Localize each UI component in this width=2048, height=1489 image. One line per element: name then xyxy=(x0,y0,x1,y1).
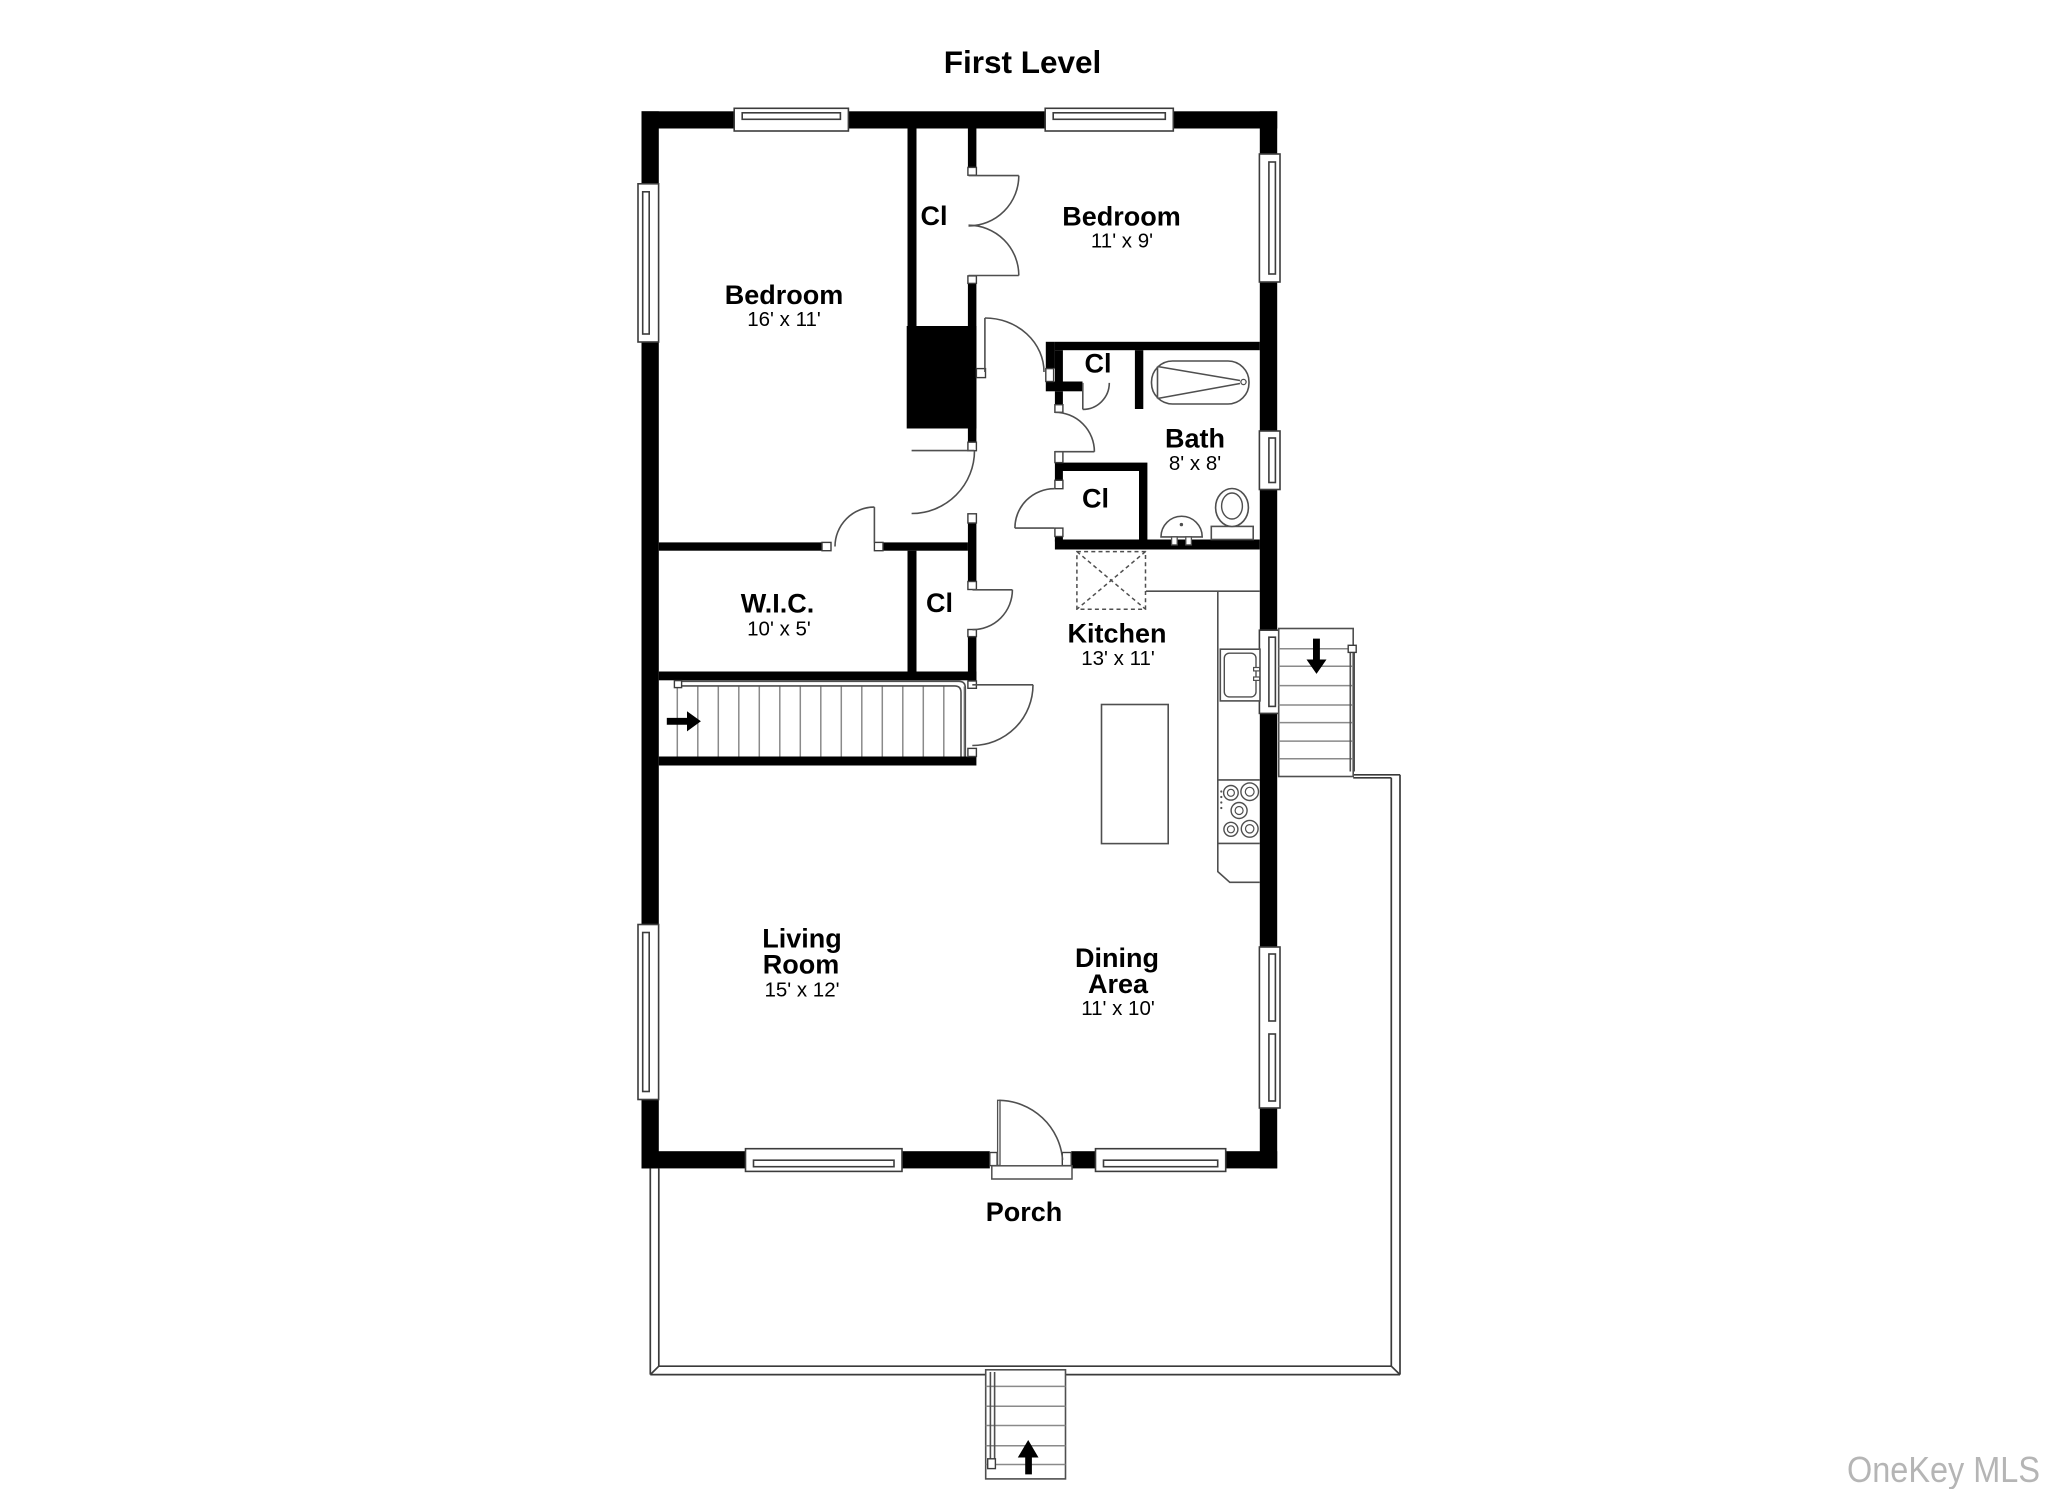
svg-text:8' x 8': 8' x 8' xyxy=(1169,452,1221,475)
svg-text:Bath: Bath xyxy=(1165,424,1225,454)
svg-text:13' x 11': 13' x 11' xyxy=(1081,647,1155,670)
svg-text:Bedroom: Bedroom xyxy=(1062,202,1181,232)
svg-text:Cl: Cl xyxy=(1085,349,1112,379)
svg-text:Cl: Cl xyxy=(926,588,953,618)
svg-text:Cl: Cl xyxy=(921,201,948,231)
svg-text:Cl: Cl xyxy=(1082,484,1109,514)
svg-text:16' x 11': 16' x 11' xyxy=(747,308,821,331)
svg-text:11' x 9': 11' x 9' xyxy=(1091,230,1153,253)
svg-text:W.I.C.: W.I.C. xyxy=(741,589,815,619)
svg-text:OneKey MLS: OneKey MLS xyxy=(1847,1449,2040,1489)
svg-text:Bedroom: Bedroom xyxy=(725,280,844,310)
svg-text:First Level: First Level xyxy=(944,44,1102,80)
svg-text:Kitchen: Kitchen xyxy=(1067,619,1166,649)
svg-text:10' x 5': 10' x 5' xyxy=(747,618,811,641)
svg-text:Area: Area xyxy=(1088,969,1149,999)
svg-text:15' x 12': 15' x 12' xyxy=(764,979,839,1002)
svg-text:Room: Room xyxy=(763,950,840,980)
svg-text:Porch: Porch xyxy=(986,1197,1063,1227)
svg-text:11' x 10': 11' x 10' xyxy=(1081,997,1155,1020)
